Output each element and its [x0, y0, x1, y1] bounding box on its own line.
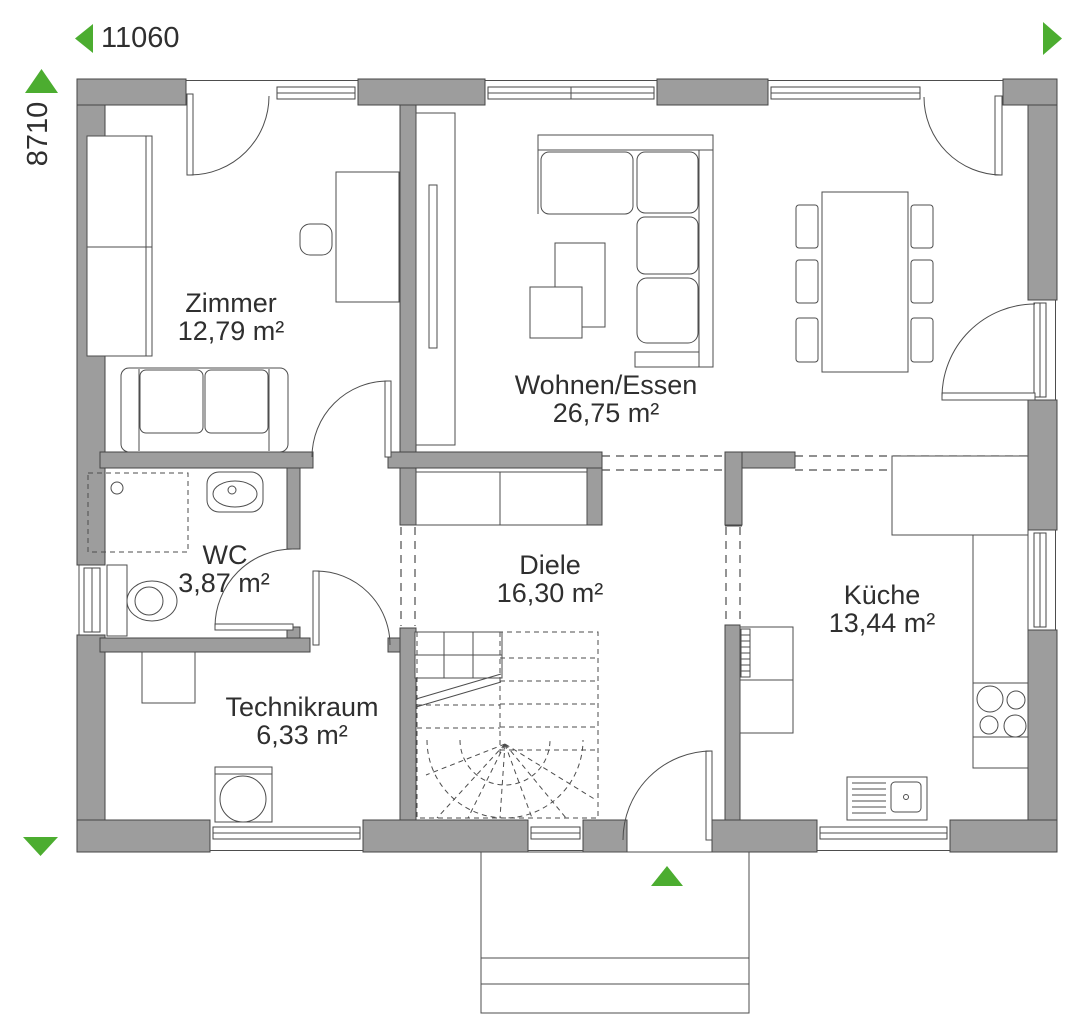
side-table [530, 287, 582, 338]
wardrobe [87, 136, 152, 356]
desk-chair [300, 224, 332, 255]
wall-kueche-passage-top [725, 452, 742, 525]
dimension-arrow-right-icon [1043, 22, 1062, 55]
window-technikraum-bottom [213, 827, 360, 839]
room-area-wohnen-essen: 26,75 m² [553, 398, 660, 428]
wall-diele-kueche [725, 625, 740, 820]
wall-diele-wohnen [388, 452, 602, 468]
wall-wc-technikraum [100, 638, 310, 652]
room-area-kueche: 13,44 m² [829, 608, 936, 638]
floor-plan-canvas: 11060 8710 Zimmer 12,79 m² Wohnen/Essen … [0, 0, 1080, 1028]
kitchen-sink [847, 777, 927, 820]
wall-wc-corridor-top [287, 468, 300, 549]
room-area-wc: 3,87 m² [178, 568, 270, 598]
window-kueche-bottom [820, 827, 947, 839]
window-essen-top [771, 87, 920, 99]
window-kueche-right [1034, 533, 1046, 627]
dining-table [822, 192, 908, 372]
window-wohnen-top [488, 87, 654, 99]
room-label-kueche: Küche [844, 580, 921, 610]
wall-zimmer-wohnen [400, 105, 416, 452]
wall-stair-top [400, 468, 416, 525]
room-area-technikraum: 6,33 m² [256, 720, 348, 750]
floor-plan-page: 11060 8710 Zimmer 12,79 m² Wohnen/Essen … [0, 0, 1080, 1028]
desk [336, 172, 399, 302]
tall-cabinet [416, 113, 455, 445]
technik-table [142, 652, 195, 703]
stove [973, 683, 1028, 737]
entrance-steps [481, 852, 749, 1013]
room-label-wohnen-essen: Wohnen/Essen [515, 370, 698, 400]
radiator [741, 629, 750, 677]
room-area-diele: 16,30 m² [497, 578, 604, 608]
sideboard [416, 472, 587, 525]
room-label-technikraum: Technikraum [225, 692, 378, 722]
wall-zimmer-wc [100, 452, 313, 468]
washing-machine [215, 767, 272, 822]
sofa-two-seat [121, 368, 288, 452]
washbasin [207, 472, 263, 512]
window-zimmer-top [277, 87, 355, 99]
room-label-diele: Diele [519, 550, 581, 580]
wall-pillar-sideboard [587, 468, 602, 525]
wall-stair-bottom [400, 628, 416, 820]
room-label-wc: WC [203, 540, 248, 570]
dimension-arrow-left-icon [75, 24, 93, 53]
dimension-width-label: 11060 [101, 22, 180, 54]
window-diele-bottom [531, 827, 580, 839]
room-area-zimmer: 12,79 m² [178, 316, 285, 346]
room-label-zimmer: Zimmer [185, 288, 276, 318]
dimension-height-label: 8710 [22, 102, 54, 167]
window-wc-left [84, 568, 100, 632]
dimension-arrow-down-icon [23, 837, 58, 856]
dimension-arrow-up-icon [25, 69, 58, 93]
